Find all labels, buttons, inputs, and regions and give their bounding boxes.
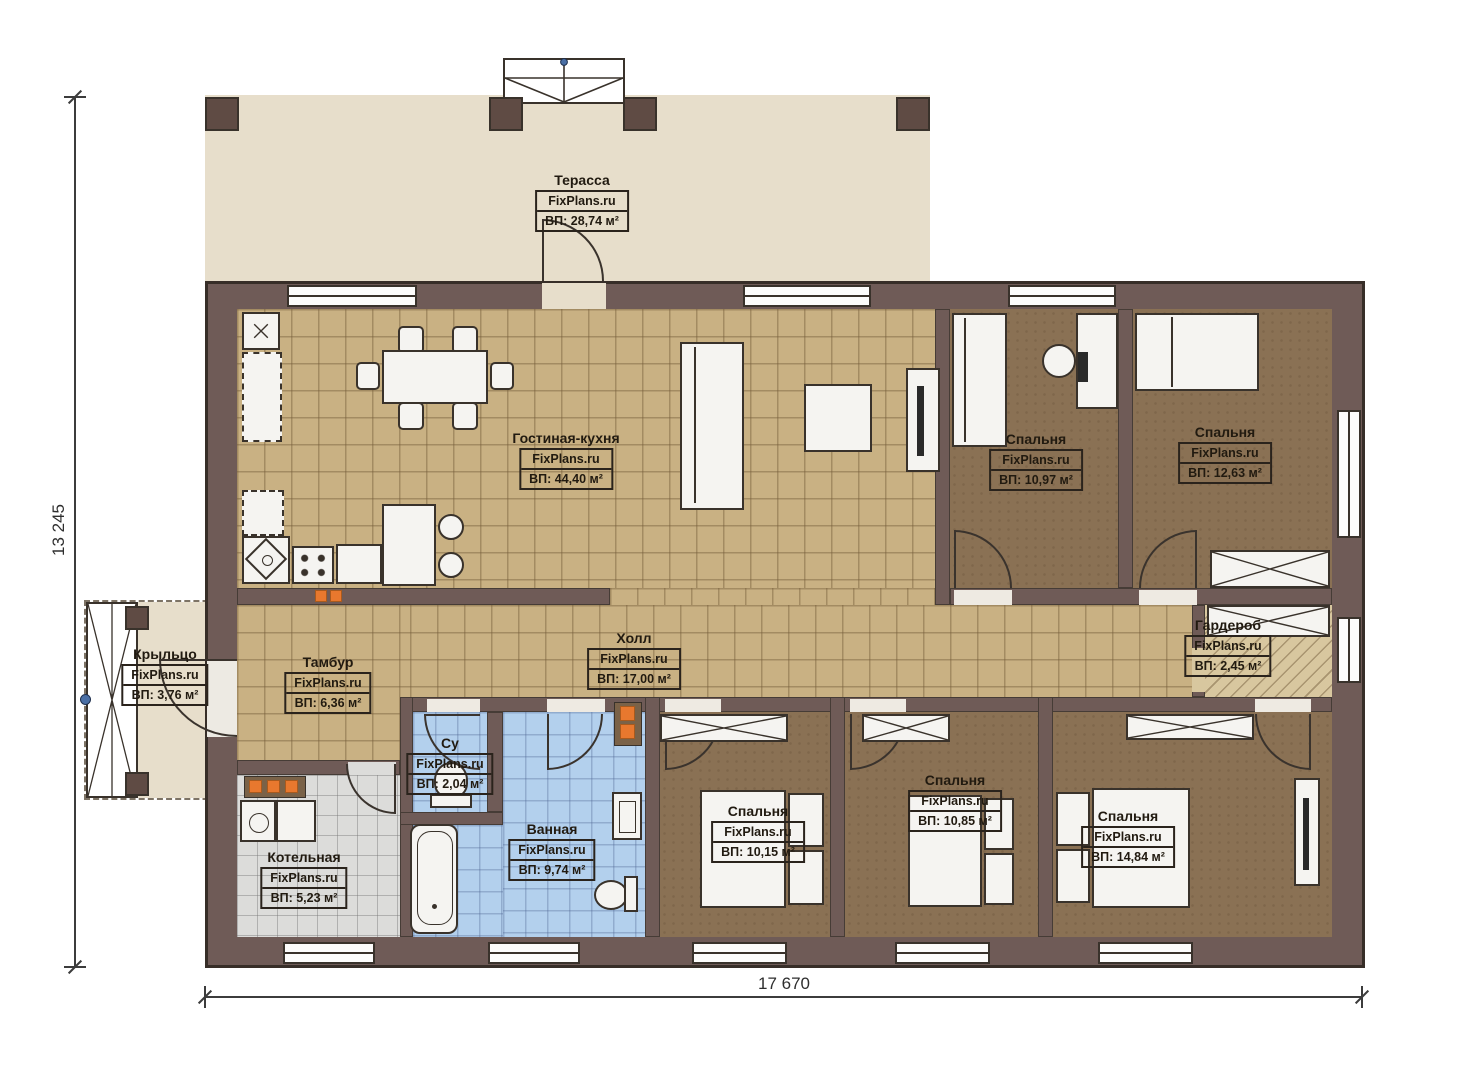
room-area: ВП: 12,63 м² bbox=[1180, 462, 1270, 482]
drain-icon bbox=[432, 904, 437, 909]
watermark-text: FixPlans.ru bbox=[713, 823, 803, 841]
kitchen-counter bbox=[242, 352, 282, 442]
room-label-bedroom-1: Спальня FixPlans.ru ВП: 10,97 м² bbox=[989, 431, 1083, 491]
door-opening bbox=[427, 699, 480, 712]
watermark-text: FixPlans.ru bbox=[991, 451, 1081, 469]
window bbox=[1098, 942, 1193, 964]
sofa-back-line bbox=[694, 347, 696, 503]
door-opening bbox=[542, 283, 606, 309]
vent-icon bbox=[249, 780, 262, 793]
room-area: ВП: 28,74 м² bbox=[537, 210, 627, 230]
door-opening bbox=[850, 699, 906, 712]
room-area: ВП: 3,76 м² bbox=[123, 684, 206, 704]
column bbox=[125, 772, 149, 796]
room-label-box: FixPlans.ru ВП: 2,04 м² bbox=[406, 753, 493, 795]
vent-icon bbox=[330, 590, 342, 602]
room-label-box: FixPlans.ru ВП: 6,36 м² bbox=[284, 672, 371, 714]
wardrobe-box bbox=[1210, 550, 1330, 588]
coffee-table bbox=[804, 384, 872, 452]
watermark-text: FixPlans.ru bbox=[910, 792, 1000, 810]
watermark-text: FixPlans.ru bbox=[589, 650, 679, 668]
room-area: ВП: 9,74 м² bbox=[510, 859, 593, 879]
room-label-boiler: Котельная FixPlans.ru ВП: 5,23 м² bbox=[260, 849, 347, 909]
kitchen-counter bbox=[242, 490, 284, 536]
room-area: ВП: 10,15 м² bbox=[713, 841, 803, 861]
room-label-box: FixPlans.ru ВП: 10,15 м² bbox=[711, 821, 805, 863]
room-area: ВП: 6,36 м² bbox=[286, 692, 369, 712]
washbasin-bowl bbox=[619, 801, 636, 833]
wall bbox=[830, 697, 845, 937]
room-name: Спальня bbox=[728, 803, 788, 819]
wardrobe-cross-icon bbox=[1212, 552, 1328, 586]
room-area: ВП: 2,04 м² bbox=[408, 773, 491, 793]
column bbox=[489, 97, 523, 131]
bar-stool bbox=[438, 552, 464, 578]
room-name: Спальня bbox=[1195, 424, 1255, 440]
room-label-box: FixPlans.ru ВП: 10,85 м² bbox=[908, 790, 1002, 832]
vent-icon bbox=[285, 780, 298, 793]
room-area: ВП: 2,45 м² bbox=[1186, 655, 1269, 675]
column bbox=[125, 606, 149, 630]
window bbox=[1008, 285, 1116, 307]
washing-machine bbox=[240, 800, 276, 842]
tv-icon bbox=[1303, 798, 1309, 870]
room-label-box: FixPlans.ru ВП: 14,84 м² bbox=[1081, 826, 1175, 868]
window bbox=[283, 942, 375, 964]
bathtub-inner bbox=[417, 831, 453, 925]
room-label-hall: Холл FixPlans.ru ВП: 17,00 м² bbox=[587, 630, 681, 690]
tv-icon bbox=[917, 386, 924, 456]
watermark-text: FixPlans.ru bbox=[408, 755, 491, 773]
chair bbox=[490, 362, 514, 390]
wall bbox=[1038, 697, 1053, 937]
watermark-text: FixPlans.ru bbox=[510, 841, 593, 859]
room-name: Спальня bbox=[925, 772, 985, 788]
washer-drum-icon bbox=[249, 813, 269, 833]
window bbox=[1337, 410, 1361, 538]
dimension-line-vertical bbox=[74, 97, 76, 968]
vent-icon bbox=[620, 706, 635, 721]
door-opening bbox=[1139, 590, 1197, 605]
sofa bbox=[680, 342, 744, 510]
bathtub bbox=[410, 824, 458, 934]
chair bbox=[356, 362, 380, 390]
dimension-label-height: 13 245 bbox=[49, 485, 69, 575]
wardrobe-cross-icon bbox=[662, 716, 786, 740]
room-name: Крыльцо bbox=[133, 646, 197, 662]
wardrobe-box bbox=[660, 714, 788, 742]
cross-icon bbox=[244, 314, 278, 348]
window bbox=[895, 942, 990, 964]
watermark-text: FixPlans.ru bbox=[123, 666, 206, 684]
watermark-text: FixPlans.ru bbox=[286, 674, 369, 692]
wardrobe-box bbox=[1126, 714, 1254, 740]
survey-point-marker bbox=[80, 694, 91, 705]
room-name: Терасса bbox=[554, 172, 610, 188]
chair bbox=[452, 402, 478, 430]
cabinet-line bbox=[964, 318, 966, 442]
room-label-bathroom: Ванная FixPlans.ru ВП: 9,74 м² bbox=[508, 821, 595, 881]
door-opening bbox=[665, 699, 721, 712]
tv-stand bbox=[1294, 778, 1320, 886]
room-label-box: FixPlans.ru ВП: 17,00 м² bbox=[587, 648, 681, 690]
window bbox=[692, 942, 787, 964]
cabinet bbox=[952, 313, 1007, 447]
room-label-bedroom-2: Спальня FixPlans.ru ВП: 12,63 м² bbox=[1178, 424, 1272, 484]
window bbox=[488, 942, 580, 964]
room-area: ВП: 14,84 м² bbox=[1083, 846, 1173, 866]
pillow bbox=[984, 853, 1014, 905]
watermark-text: FixPlans.ru bbox=[521, 450, 611, 468]
room-label-box: FixPlans.ru ВП: 2,45 м² bbox=[1184, 635, 1271, 677]
window bbox=[743, 285, 871, 307]
floor-plan: Терасса FixPlans.ru ВП: 28,74 м² Гостина… bbox=[0, 0, 1473, 1080]
door-opening bbox=[1255, 699, 1311, 712]
room-name: Холл bbox=[616, 630, 651, 646]
wardrobe-cross-icon bbox=[1128, 716, 1252, 738]
wall bbox=[1118, 309, 1133, 588]
column bbox=[205, 97, 239, 131]
room-label-bedroom-3: Спальня FixPlans.ru ВП: 10,15 м² bbox=[711, 803, 805, 863]
room-name: Спальня bbox=[1006, 431, 1066, 447]
kitchen-counter bbox=[336, 544, 382, 584]
room-label-box: FixPlans.ru ВП: 9,74 м² bbox=[508, 839, 595, 881]
room-area: ВП: 5,23 м² bbox=[262, 887, 345, 907]
kitchen-island bbox=[382, 504, 436, 586]
room-label-box: FixPlans.ru ВП: 5,23 м² bbox=[260, 867, 347, 909]
room-area: ВП: 17,00 м² bbox=[589, 668, 679, 688]
watermark-text: FixPlans.ru bbox=[1083, 828, 1173, 846]
room-name: Су bbox=[441, 735, 459, 751]
room-name: Гостиная-кухня bbox=[512, 430, 619, 446]
room-area: ВП: 10,85 м² bbox=[910, 810, 1000, 830]
watermark-text: FixPlans.ru bbox=[1186, 637, 1269, 655]
room-name: Гардероб bbox=[1195, 617, 1261, 633]
room-name: Котельная bbox=[267, 849, 340, 865]
stove bbox=[292, 546, 334, 584]
tv-stand bbox=[906, 368, 940, 472]
dining-table bbox=[382, 350, 488, 404]
pillow-divider-line bbox=[1171, 317, 1173, 387]
bar-stool bbox=[438, 514, 464, 540]
vent-icon bbox=[620, 724, 635, 739]
wardrobe-box bbox=[862, 714, 950, 742]
bed bbox=[1135, 313, 1259, 391]
kitchen-appliance-box bbox=[242, 312, 280, 350]
room-label-bedroom-5: Спальня FixPlans.ru ВП: 14,84 м² bbox=[1081, 808, 1175, 868]
dimension-label-width: 17 670 bbox=[734, 974, 834, 994]
window bbox=[1337, 617, 1361, 683]
vent-icon bbox=[315, 590, 327, 602]
desk-chair bbox=[1042, 344, 1076, 378]
room-label-wardrobe: Гардероб FixPlans.ru ВП: 2,45 м² bbox=[1184, 617, 1271, 677]
room-hall-floor bbox=[410, 605, 1192, 697]
room-label-porch: Крыльцо FixPlans.ru ВП: 3,76 м² bbox=[121, 646, 208, 706]
room-name: Ванная bbox=[527, 821, 578, 837]
room-label-box: FixPlans.ru ВП: 12,63 м² bbox=[1178, 442, 1272, 484]
wall bbox=[400, 812, 503, 825]
watermark-text: FixPlans.ru bbox=[537, 192, 627, 210]
toilet-tank bbox=[430, 794, 472, 808]
room-area: ВП: 44,40 м² bbox=[521, 468, 611, 488]
room-label-terrace: Терасса FixPlans.ru ВП: 28,74 м² bbox=[535, 172, 629, 232]
watermark-text: FixPlans.ru bbox=[262, 869, 345, 887]
column bbox=[896, 97, 930, 131]
sink-drain-icon bbox=[262, 555, 273, 566]
door-opening bbox=[954, 590, 1012, 605]
wall bbox=[645, 697, 660, 937]
window bbox=[287, 285, 417, 307]
room-label-box: FixPlans.ru ВП: 44,40 м² bbox=[519, 448, 613, 490]
room-label-wc: Су FixPlans.ru ВП: 2,04 м² bbox=[406, 735, 493, 795]
room-label-living-kitchen: Гостиная-кухня FixPlans.ru ВП: 44,40 м² bbox=[512, 430, 619, 490]
toilet-tank bbox=[624, 876, 638, 912]
wardrobe-cross-icon bbox=[864, 716, 948, 740]
boiler-counter bbox=[276, 800, 316, 842]
door-opening bbox=[547, 699, 605, 712]
dimension-line-horizontal bbox=[205, 996, 1363, 998]
room-label-box: FixPlans.ru ВП: 28,74 м² bbox=[535, 190, 629, 232]
room-name: Спальня bbox=[1098, 808, 1158, 824]
monitor-icon bbox=[1078, 352, 1088, 382]
room-label-bedroom-4: Спальня FixPlans.ru ВП: 10,85 м² bbox=[908, 772, 1002, 832]
toilet bbox=[594, 880, 628, 910]
room-label-box: FixPlans.ru ВП: 10,97 м² bbox=[989, 449, 1083, 491]
chair bbox=[398, 402, 424, 430]
wall bbox=[237, 588, 610, 605]
living-hall-opening bbox=[610, 588, 935, 605]
room-label-box: FixPlans.ru ВП: 3,76 м² bbox=[121, 664, 208, 706]
vent-icon bbox=[267, 780, 280, 793]
watermark-text: FixPlans.ru bbox=[1180, 444, 1270, 462]
room-area: ВП: 10,97 м² bbox=[991, 469, 1081, 489]
room-name: Тамбур bbox=[303, 654, 354, 670]
washbasin bbox=[612, 792, 642, 840]
room-label-vestibule: Тамбур FixPlans.ru ВП: 6,36 м² bbox=[284, 654, 371, 714]
column bbox=[623, 97, 657, 131]
